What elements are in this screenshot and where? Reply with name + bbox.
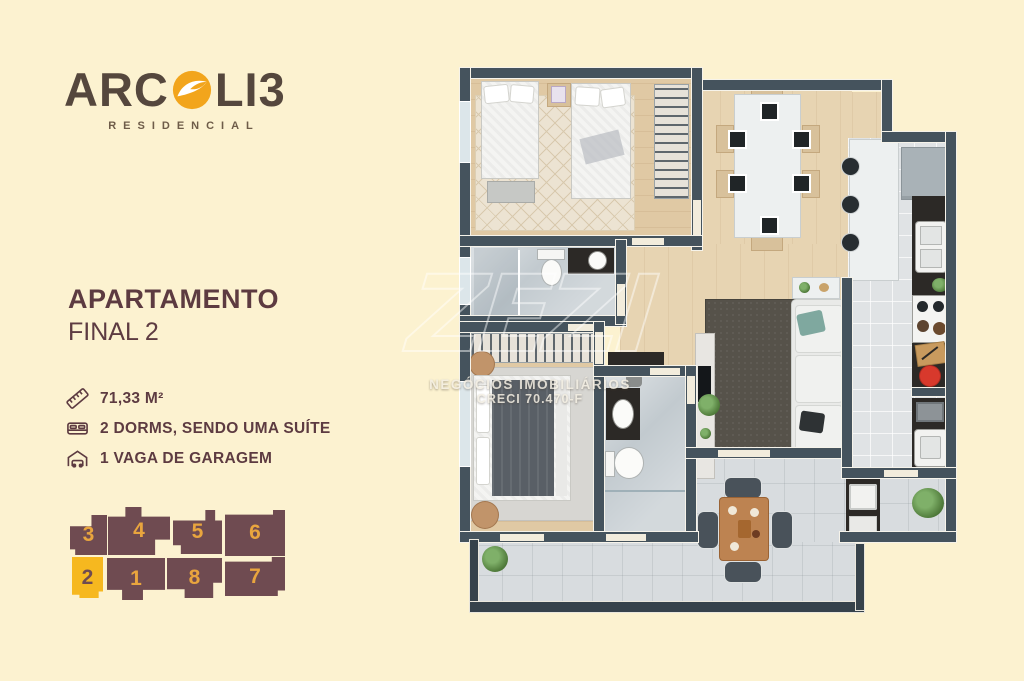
shower-partition: [604, 490, 688, 492]
listing-subtitle: FINAL 2: [68, 318, 159, 347]
single-bed-left: [482, 82, 538, 178]
dark-pillow: [799, 410, 826, 433]
shower-area: [474, 248, 518, 318]
bed-bench: [488, 182, 534, 202]
unit-number: 6: [249, 521, 261, 545]
door-opening: [884, 470, 918, 477]
ruler-icon: [66, 387, 89, 410]
dining-chair-seat: [792, 174, 811, 193]
wall: [842, 278, 852, 478]
unit-2-highlighted: 2: [72, 557, 103, 598]
laundry-tank: [915, 430, 947, 466]
spec-dorms: 2 DORMS, SENDO UMA SUÍTE: [66, 417, 331, 440]
dining-chair-seat: [760, 216, 779, 235]
building-unit-map: 3 4 5 6 2 1 8 7: [68, 504, 292, 600]
spec-label: 2 DORMS, SENDO UMA SUÍTE: [100, 420, 331, 438]
spec-label: 71,33 M²: [100, 390, 164, 408]
unit-number: 3: [83, 523, 95, 547]
bathroom-vanity: [568, 248, 614, 274]
unit-number: 7: [249, 565, 261, 589]
wall: [882, 132, 956, 142]
suite-vanity: [606, 388, 640, 440]
door-opening: [595, 332, 603, 364]
door-opening: [687, 376, 695, 404]
wall: [840, 532, 956, 542]
balcony-strip-floor: [472, 542, 862, 606]
logo-text-end: LI3: [215, 62, 286, 117]
unit-number: 1: [130, 567, 142, 591]
balcony-chair: [698, 512, 718, 548]
laundry-items: [916, 402, 944, 422]
wall: [460, 236, 702, 246]
spec-area: 71,33 M²: [66, 387, 331, 410]
dining-chair-back: [752, 236, 782, 250]
wall: [882, 80, 892, 140]
unit-number: 8: [189, 566, 201, 590]
wave-circle-icon: [172, 70, 212, 110]
door-opening: [650, 368, 680, 375]
wall: [594, 366, 696, 376]
nightstand: [548, 84, 570, 106]
logo-subtitle: RESIDENCIAL: [66, 120, 302, 132]
wall: [460, 532, 698, 542]
balcony-chair: [725, 562, 761, 582]
spec-label: 1 VAGA DE GARAGEM: [100, 450, 272, 468]
unit-5: 5: [173, 510, 222, 554]
kitchen-sink: [916, 222, 946, 272]
unit-6: 6: [225, 510, 285, 556]
balcony-door-opening: [718, 450, 770, 457]
window: [460, 382, 470, 466]
floor-plan: [456, 38, 986, 650]
door-opening: [632, 238, 664, 245]
pouf: [470, 352, 494, 376]
suite-double-bed: [474, 376, 570, 500]
spec-list: 71,33 M² 2 DORMS, SENDO UMA SUÍTE 1 VAGA…: [66, 387, 331, 470]
window: [460, 102, 470, 162]
balcony-plant: [482, 546, 508, 572]
balcony-railing: [470, 602, 864, 612]
dining-chair-seat: [728, 130, 747, 149]
suite-toilet-tank: [606, 452, 614, 476]
balcony-table: [720, 498, 768, 560]
single-bed-right: [572, 84, 630, 198]
grill-counter: [846, 478, 880, 538]
living-rug: [706, 300, 802, 448]
cooktop: [913, 296, 949, 342]
balcony-railing: [470, 540, 478, 610]
dining-floor-strip: [852, 92, 886, 140]
listing-title: APARTAMENTO: [68, 284, 279, 315]
balcony-door-opening: [500, 534, 544, 541]
wall: [946, 132, 956, 542]
bar-stool: [842, 234, 859, 251]
dining-chair-seat: [728, 174, 747, 193]
logo-text-start: ARC: [64, 62, 169, 117]
logo: ARC LI3: [64, 62, 286, 117]
window: [460, 258, 470, 304]
unit-8: 8: [167, 558, 222, 598]
suite-toilet-bowl: [615, 448, 643, 478]
bar-stool: [842, 158, 859, 175]
balcony-door-opening: [606, 534, 646, 541]
wall: [460, 68, 702, 78]
toilet-bowl: [542, 260, 561, 285]
spec-garage: 1 VAGA DE GARAGEM: [66, 447, 331, 470]
console-table: [793, 278, 839, 298]
grill-sink: [849, 484, 877, 510]
cutting-board: [916, 342, 947, 366]
wall: [692, 80, 892, 90]
bedroom2-wardrobe-rack: [655, 85, 688, 198]
wall: [912, 388, 950, 396]
unit-7: 7: [225, 557, 285, 596]
fridge: [902, 148, 948, 199]
bar-stool: [842, 196, 859, 213]
pouf: [472, 502, 498, 528]
gourmet-plant: [912, 488, 944, 518]
door-opening: [617, 284, 625, 316]
bed-icon: [66, 417, 89, 440]
sofa: [792, 300, 848, 456]
dining-chair-seat: [792, 130, 811, 149]
unit-4: 4: [108, 507, 170, 555]
balcony-railing: [856, 544, 864, 610]
car-icon: [66, 447, 89, 470]
unit-1: 1: [107, 558, 165, 600]
flyer-canvas: { "page": {"background_color": "#fcf2d0"…: [0, 0, 1024, 681]
toilet: [538, 250, 564, 259]
unit-3: 3: [70, 515, 107, 555]
unit-number: 2: [82, 566, 94, 590]
shower-glass: [518, 250, 520, 316]
unit-number: 5: [192, 520, 204, 544]
red-pot: [920, 366, 940, 386]
balcony-chair: [772, 512, 792, 548]
balcony-chair: [725, 478, 761, 498]
unit-number: 4: [133, 519, 145, 543]
hall-plant: [698, 394, 720, 416]
dining-chair-seat: [760, 102, 779, 121]
